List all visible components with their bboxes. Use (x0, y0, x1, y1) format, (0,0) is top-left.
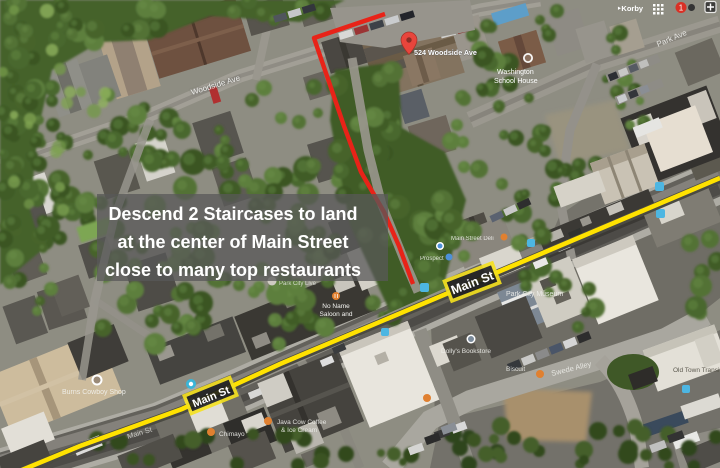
svg-text:close to many top restaurants: close to many top restaurants (105, 260, 361, 280)
svg-text:Park City Live: Park City Live (279, 281, 317, 287)
svg-text:Park City Museum: Park City Museum (506, 291, 563, 298)
svg-text:Saloon and: Saloon and (320, 311, 353, 318)
svg-text:‣Korby: ‣Korby (617, 4, 644, 13)
svg-text:Washington: Washington (497, 69, 534, 76)
svg-text:School House: School House (494, 78, 538, 85)
svg-text:Main Street Deli: Main Street Deli (451, 236, 494, 242)
svg-text:Biscuit: Biscuit (506, 366, 525, 373)
svg-text:No Name: No Name (322, 303, 350, 310)
svg-text:524 Woodside Ave: 524 Woodside Ave (414, 48, 477, 57)
svg-text:Descend 2 Staircases to land: Descend 2 Staircases to land (108, 204, 357, 224)
svg-text:& Ice Cream: & Ice Cream (281, 427, 317, 434)
svg-text:Java Cow Coffee: Java Cow Coffee (277, 419, 327, 426)
svg-text:1: 1 (679, 4, 684, 13)
svg-text:Prospect: Prospect (420, 256, 444, 262)
svg-text:Chimayo: Chimayo (219, 431, 245, 438)
svg-text:Dolly's Bookstore: Dolly's Bookstore (441, 348, 491, 355)
svg-text:Old Town Transit: Old Town Transit (673, 367, 720, 374)
svg-text:at the center of Main Street: at the center of Main Street (117, 232, 348, 252)
svg-text:Burns Cowboy Shop: Burns Cowboy Shop (62, 389, 126, 396)
